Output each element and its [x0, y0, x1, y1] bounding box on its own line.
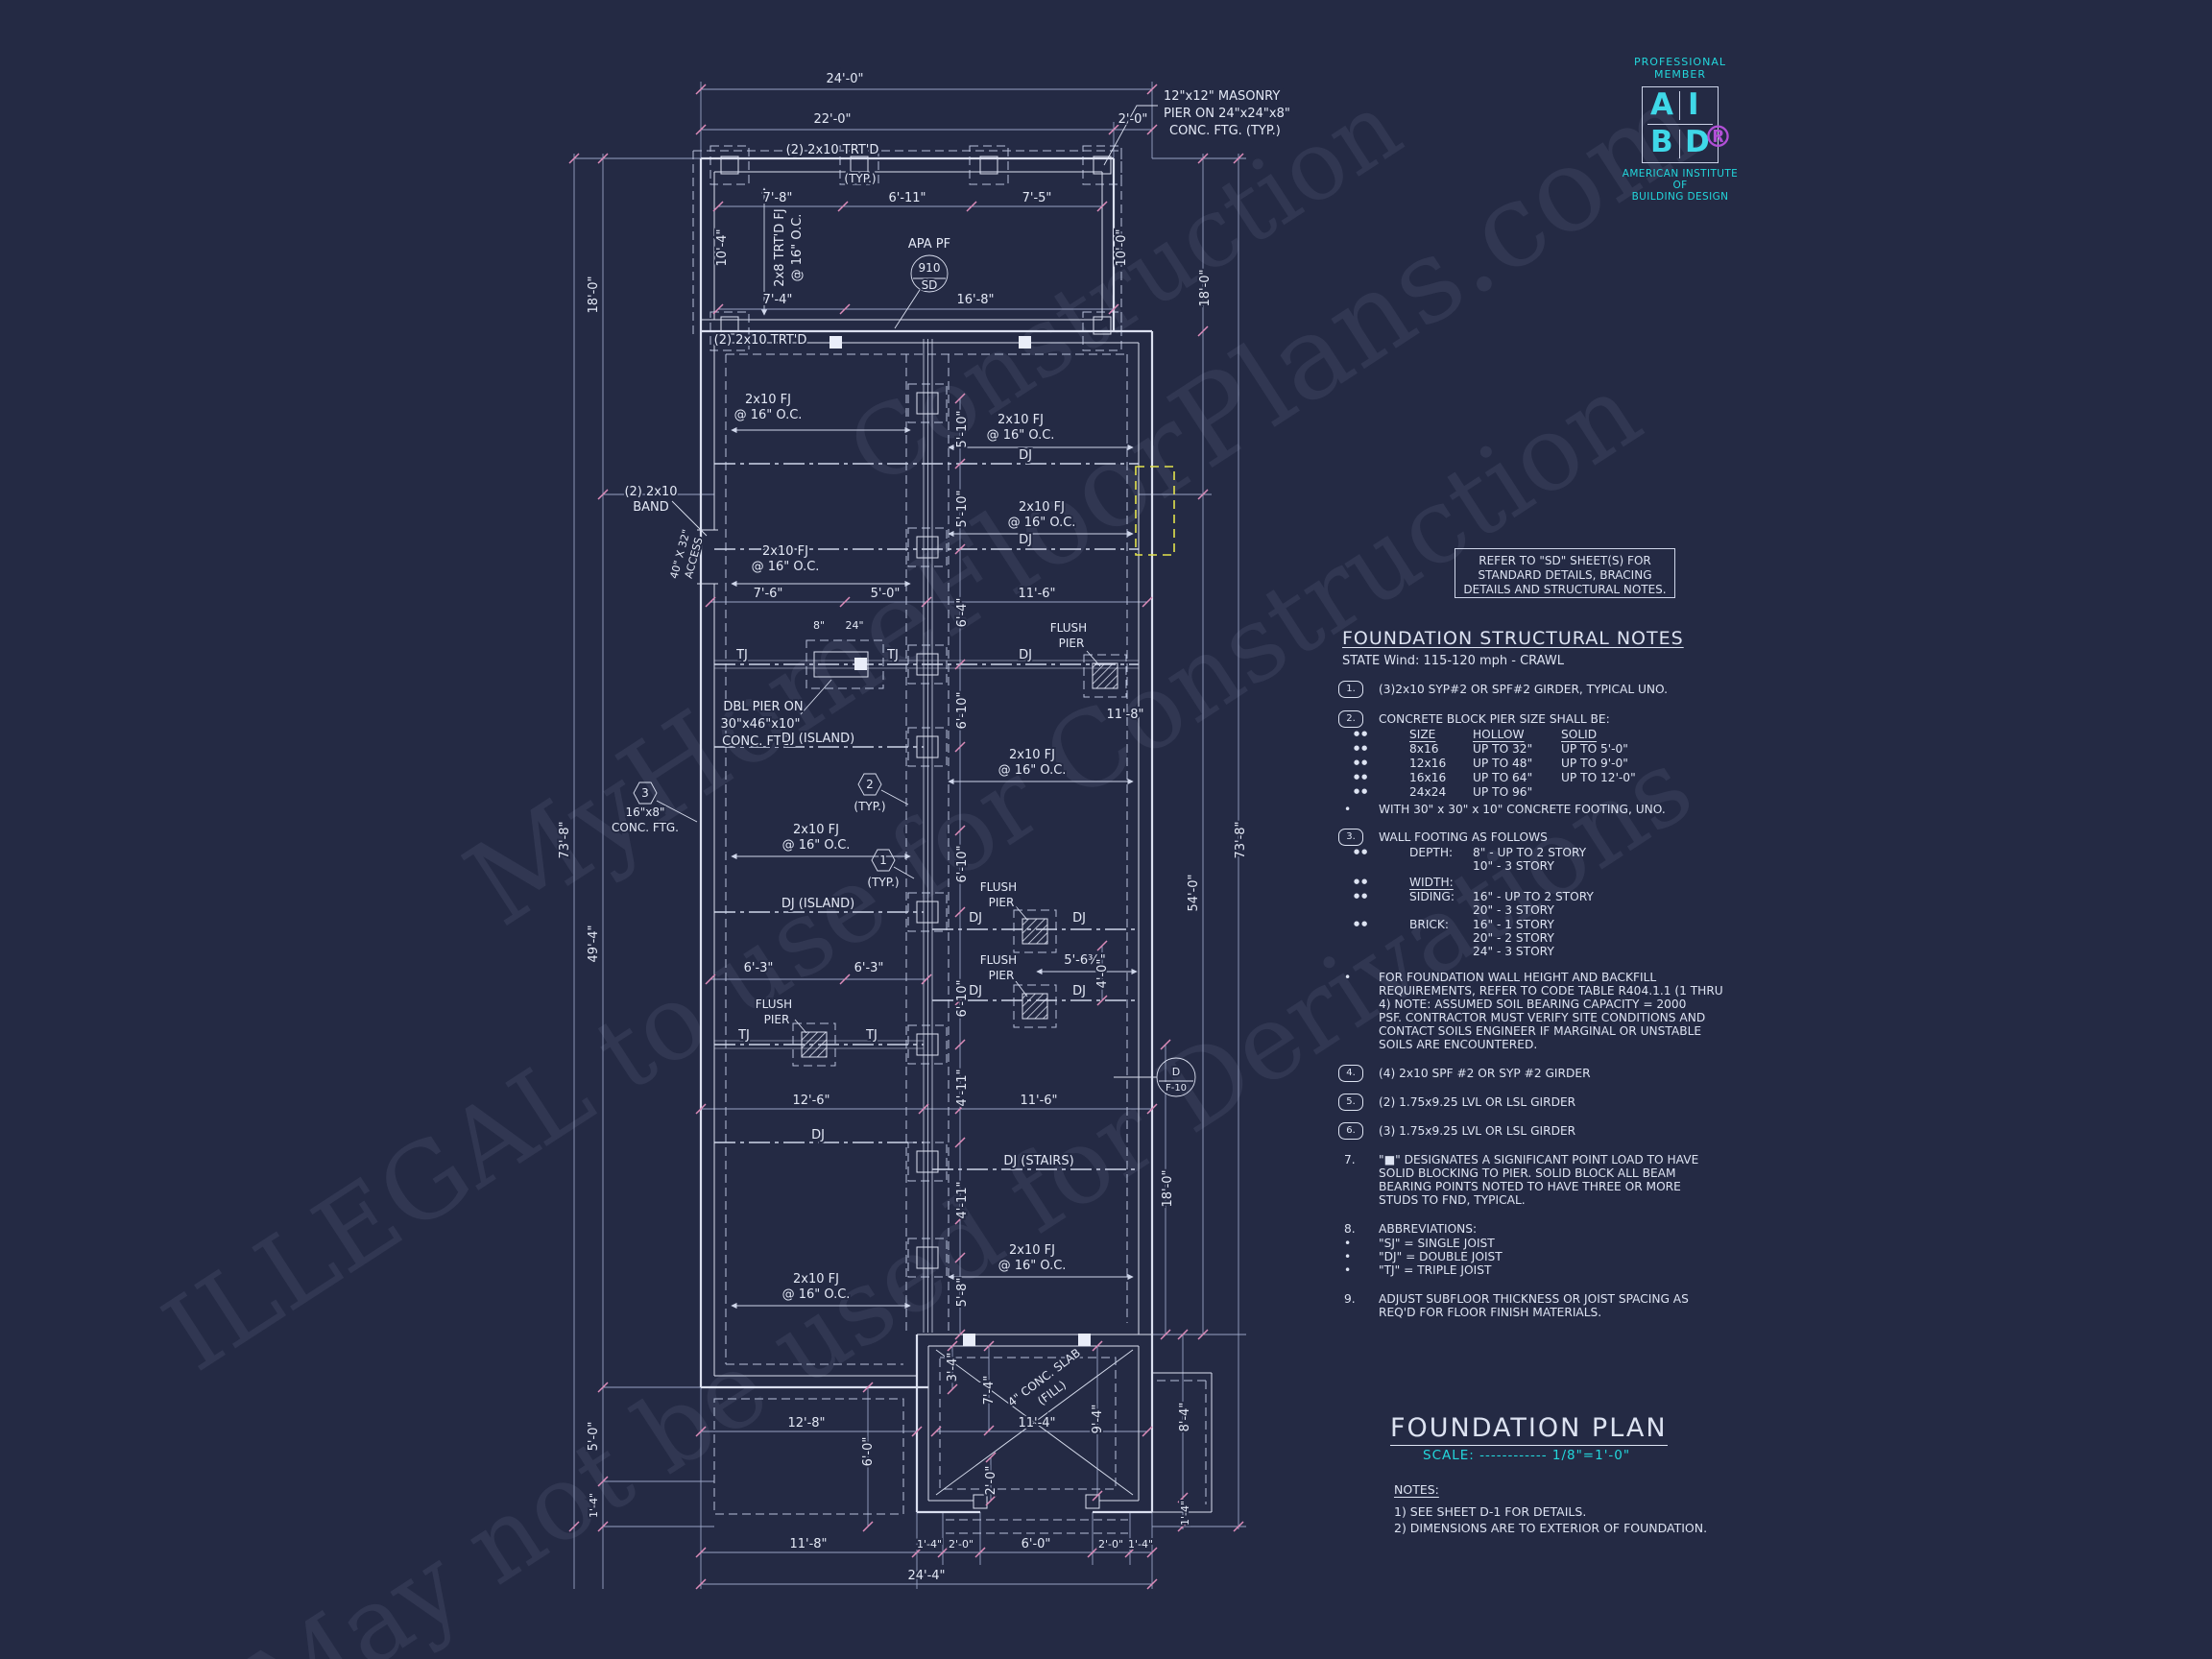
note-text: "■" DESIGNATES A SIGNIFICANT POINT LOAD …	[1379, 1153, 1698, 1166]
plan-label: FLUSH	[1050, 621, 1087, 635]
note-text: SIDING:	[1409, 890, 1455, 903]
flush-pier-hatch	[802, 1032, 827, 1057]
plan-label: 30"x46"x10"	[721, 717, 801, 732]
refer-line-1: REFER TO "SD" SHEET(S) FOR	[1455, 554, 1674, 568]
plan-label: CONC. FTG.	[612, 821, 679, 834]
registered-mark: ®	[1703, 120, 1733, 155]
note-text: UP TO 9'-0"	[1561, 757, 1628, 770]
point-load-marker	[829, 336, 842, 349]
plan-label: DJ	[969, 984, 982, 998]
plan-label: 11'-4"	[1018, 1416, 1055, 1431]
plan-label: @ 16" O.C.	[782, 1287, 851, 1302]
plan-label: 73'-8"	[1234, 821, 1248, 858]
plan-label: 4'-11"	[955, 1069, 970, 1106]
note-text: "SJ" = SINGLE JOIST	[1379, 1237, 1495, 1250]
plan-label: 18'-0"	[587, 276, 601, 313]
plan-label: @ 16" O.C.	[734, 408, 803, 422]
plan-label: 2x10 FJ	[998, 413, 1044, 427]
plan-label: (TYP.)	[854, 800, 885, 813]
plan-label: 10'-0"	[1115, 228, 1129, 266]
note-text: 12x16	[1409, 757, 1446, 770]
plan-label: 6'-11"	[888, 191, 926, 205]
note-text: HOLLOW	[1473, 728, 1525, 741]
plan-label: TJ	[865, 1028, 878, 1043]
plan-label: 6'-0"	[861, 1437, 876, 1467]
plan-label: DJ	[1019, 448, 1032, 463]
note-text: (3) 1.75x9.25 LVL OR LSL GIRDER	[1379, 1124, 1575, 1138]
plan-label: 8'-4"	[1178, 1403, 1192, 1432]
plan-label: FLUSH	[980, 880, 1017, 894]
note-text: "DJ" = DOUBLE JOIST	[1379, 1250, 1503, 1263]
note-text: WALL FOOTING AS FOLLOWS	[1379, 830, 1548, 844]
logo-letter-i: I	[1688, 87, 1699, 122]
note-text: 16" - 1 STORY	[1473, 918, 1554, 931]
note-text: "TJ" = TRIPLE JOIST	[1379, 1263, 1491, 1277]
plan-label: 5'-0"	[587, 1422, 601, 1452]
note-text: 8x16	[1409, 742, 1438, 756]
plan-label: 2x8 TRT'D FJ	[773, 208, 787, 286]
plan-label: 2x10 FJ	[1009, 1243, 1055, 1258]
plan-label: 12'-8"	[787, 1416, 825, 1431]
note-text: 16x16	[1409, 771, 1446, 784]
plan-label: 3	[641, 786, 649, 800]
structural-notes-title: FOUNDATION STRUCTURAL NOTES	[1342, 628, 1684, 649]
note-text: 24" - 3 STORY	[1473, 945, 1554, 958]
plan-label: PIER	[989, 896, 1015, 909]
plan-label: 1	[879, 854, 887, 867]
plan-label: 6'-3"	[744, 961, 774, 975]
note-text: UP TO 64"	[1473, 771, 1532, 784]
plan-label: 2x10 FJ	[793, 823, 839, 837]
point-load-marker	[1019, 336, 1031, 349]
plan-label: PIER ON 24"x24"x8"	[1164, 107, 1290, 121]
plan-label: (TYP.)	[867, 876, 899, 889]
note-text: CONTACT SOILS ENGINEER IF MARGINAL OR UN…	[1379, 1024, 1701, 1038]
plan-label: 7'-4"	[763, 293, 793, 307]
plan-label: BAND	[633, 500, 669, 515]
note-text: CONCRETE BLOCK PIER SIZE SHALL BE:	[1379, 712, 1610, 726]
note-text: REQUIREMENTS, REFER TO CODE TABLE R404.1…	[1379, 984, 1723, 998]
sheet-note-2: 2) DIMENSIONS ARE TO EXTERIOR OF FOUNDAT…	[1394, 1520, 1707, 1536]
plan-label: 8"	[813, 619, 825, 632]
plan-label: PIER	[989, 969, 1015, 982]
plan-label: DJ (STAIRS)	[1003, 1154, 1073, 1168]
point-load-marker	[963, 1334, 975, 1346]
plan-label: 4'-0"	[1095, 959, 1110, 989]
refer-line-3: DETAILS AND STRUCTURAL NOTES.	[1455, 583, 1674, 597]
plan-label: 16'-8"	[956, 293, 994, 307]
plan-label: 54'-0"	[1187, 874, 1201, 911]
plan-label: 1'-4"	[1179, 1501, 1191, 1526]
plan-label: @ 16" O.C.	[1008, 516, 1076, 530]
plan-label: 18'-0"	[1198, 269, 1213, 306]
note-marker: 4.	[1338, 1065, 1363, 1082]
plan-label: 5'-0"	[871, 587, 901, 601]
plan-label: 2'-0"	[984, 1466, 998, 1496]
plan-label: 2x10 FJ	[1019, 500, 1065, 515]
structural-notes: FOUNDATION STRUCTURAL NOTES STATE Wind: …	[1342, 628, 1726, 1338]
plan-label: FLUSH	[980, 953, 1017, 967]
plan-label: APA PF	[908, 237, 950, 252]
plan-label: 3'-4"	[946, 1353, 960, 1382]
note-text: DEPTH:	[1409, 846, 1453, 859]
plan-label: 2	[866, 778, 874, 791]
plan-label: PIER	[1059, 637, 1085, 650]
flush-pier-hatch	[1022, 919, 1047, 944]
note-text: 4) NOTE: ASSUMED SOIL BEARING CAPACITY =…	[1379, 998, 1686, 1011]
note-text: 24x24	[1409, 785, 1446, 799]
plan-label: 10'-4"	[715, 228, 730, 266]
refer-line-2: STANDARD DETAILS, BRACING	[1455, 568, 1674, 583]
note-text: UP TO 32"	[1473, 742, 1532, 756]
aibd-caption-3: BUILDING DESIGN	[1621, 191, 1740, 203]
plan-label: 2x10 FJ	[1009, 748, 1055, 762]
aibd-logo-box: A I B D ®	[1642, 86, 1719, 163]
note-text: PSF. CONTRACTOR MUST VERIFY SITE CONDITI…	[1379, 1011, 1705, 1024]
plan-label: 12'-6"	[792, 1094, 829, 1108]
plan-label: (2) 2x10 TRT'D	[786, 143, 879, 157]
note-marker: 1.	[1338, 681, 1363, 698]
plan-label: 910	[919, 261, 941, 275]
note-text: 8" - UP TO 2 STORY	[1473, 846, 1586, 859]
plan-label: DJ	[1019, 533, 1032, 547]
blueprint-sheet: MyHomeFloorPlans.comConstructionILLEGAL …	[0, 0, 2212, 1659]
note-text: SOILS ARE ENCOUNTERED.	[1379, 1038, 1537, 1051]
plan-label: 2'-0"	[949, 1538, 974, 1551]
note-text: BEARING POINTS NOTED TO HAVE THREE OR MO…	[1379, 1180, 1681, 1193]
plan-label: DJ	[1072, 911, 1086, 926]
note-text: 20" - 2 STORY	[1473, 931, 1554, 945]
plan-label: @ 16" O.C.	[998, 1259, 1067, 1273]
plan-label: 18'-0"	[1161, 1169, 1175, 1207]
note-text: (4) 2x10 SPF #2 OR SYP #2 GIRDER	[1379, 1067, 1591, 1080]
sheet-title: FOUNDATION PLAN	[1390, 1413, 1668, 1446]
note-text: UP TO 96"	[1473, 785, 1532, 799]
plan-label: (TYP.)	[844, 172, 876, 185]
plan-label: 73'-8"	[558, 821, 572, 858]
plan-label: 2x10 FJ	[745, 393, 791, 407]
plan-label: 1'-4"	[588, 1493, 600, 1518]
plan-label: 1'-4"	[1128, 1538, 1153, 1551]
plan-label: DJ (ISLAND)	[781, 732, 854, 746]
note-text: REQ'D FOR FLOOR FINISH MATERIALS.	[1379, 1306, 1601, 1319]
note-text: FOR FOUNDATION WALL HEIGHT AND BACKFILL	[1379, 971, 1656, 984]
plan-label: F-10	[1166, 1083, 1187, 1094]
sheet-notes-heading: NOTES:	[1394, 1481, 1439, 1498]
note-text: ADJUST SUBFLOOR THICKNESS OR JOIST SPACI…	[1379, 1292, 1689, 1306]
professional-member-label: PROFESSIONAL	[1621, 56, 1740, 68]
aibd-logo: PROFESSIONAL MEMBER A I B D ® AMERICAN I…	[1621, 56, 1740, 203]
note-text: UP TO 12'-0"	[1561, 771, 1636, 784]
plan-label: 1'-4"	[917, 1538, 942, 1551]
foundation-plan-drawing: MyHomeFloorPlans.comConstructionILLEGAL …	[0, 0, 2212, 1659]
plan-label: 7'-4"	[982, 1376, 997, 1406]
note-text: 16" - UP TO 2 STORY	[1473, 890, 1594, 903]
aibd-caption-2: OF	[1621, 180, 1740, 191]
plan-label: 6'-4"	[955, 598, 970, 628]
plan-label: @ 16" O.C.	[782, 838, 851, 853]
plan-label: 22'-0"	[813, 112, 851, 127]
plan-label: DJ	[811, 1128, 825, 1142]
plan-label: 6'-3"	[854, 961, 884, 975]
plan-label: 6'-0"	[1022, 1537, 1051, 1551]
note-text: BRICK:	[1409, 918, 1449, 931]
plan-label: 16"x8"	[625, 805, 664, 819]
plan-label: 49'-4"	[587, 925, 601, 962]
plan-label: 12"x12" MASONRY	[1164, 89, 1280, 104]
note-text: STUDS TO FND, TYPICAL.	[1379, 1193, 1526, 1207]
plan-label: TJ	[737, 1028, 750, 1043]
note-text: SIZE	[1409, 728, 1435, 741]
plan-label: DJ	[1072, 984, 1086, 998]
plan-label: DJ (ISLAND)	[781, 897, 854, 911]
plan-label: 24'-4"	[907, 1569, 945, 1583]
plan-label: 7'-5"	[1022, 191, 1052, 205]
plan-label: 11'-8"	[789, 1537, 827, 1551]
sheet-scale: SCALE: ------------ 1/8"=1'-0"	[1423, 1448, 1630, 1463]
plan-label: 24'-0"	[826, 72, 863, 86]
plan-label: @ 16" O.C.	[987, 428, 1055, 443]
logo-letter-a: A	[1650, 87, 1673, 122]
flush-pier-hatch	[1093, 663, 1118, 688]
plan-label: @ 16" O.C.	[790, 214, 805, 282]
sheet-notes: NOTES: 1) SEE SHEET D-1 FOR DETAILS. 2) …	[1394, 1481, 1707, 1536]
plan-label: 9'-4"	[1091, 1405, 1105, 1434]
plan-label: @ 16" O.C.	[752, 560, 820, 574]
member-label: MEMBER	[1621, 68, 1740, 81]
plan-label: 5'-10"	[955, 490, 970, 527]
plan-label: 2'-0"	[1098, 1538, 1123, 1551]
plan-label: DJ	[1019, 648, 1032, 662]
note-text: 10" - 3 STORY	[1473, 859, 1554, 873]
logo-letter-b: B	[1650, 125, 1673, 159]
plan-label: (2) 2x10	[624, 485, 677, 499]
note-text: UP TO 48"	[1473, 757, 1532, 770]
plan-label: 4'-11"	[955, 1181, 970, 1218]
structural-notes-subtitle: STATE Wind: 115-120 mph - CRAWL	[1342, 654, 1564, 668]
note-marker: 6.	[1338, 1122, 1363, 1140]
note-text: WIDTH:	[1409, 876, 1454, 889]
sheet-note-1: 1) SEE SHEET D-1 FOR DETAILS.	[1394, 1503, 1707, 1520]
note-text: (2) 1.75x9.25 LVL OR LSL GIRDER	[1379, 1095, 1575, 1109]
plan-label: TJ	[735, 648, 748, 662]
note-text: UP TO 5'-0"	[1561, 742, 1628, 756]
note-marker: 5.	[1338, 1094, 1363, 1111]
plan-label: DJ	[969, 911, 982, 926]
point-load-marker	[1078, 1334, 1091, 1346]
note-text: SOLID BLOCKING TO PIER. SOLID BLOCK ALL …	[1379, 1166, 1676, 1180]
plan-label: PIER	[764, 1013, 790, 1026]
plan-label: 11'-6"	[1020, 1094, 1057, 1108]
note-text: WITH 30" x 30" x 10" CONCRETE FOOTING, U…	[1379, 803, 1666, 816]
plan-label: 2x10 FJ	[793, 1272, 839, 1286]
plan-label: 7'-8"	[763, 191, 793, 205]
note-marker: 3.	[1338, 829, 1363, 846]
note-text: (3)2x10 SYP#2 OR SPF#2 GIRDER, TYPICAL U…	[1379, 683, 1668, 696]
plan-label: 5'-8"	[955, 1278, 970, 1308]
plan-label: 6'-10"	[955, 845, 970, 882]
plan-label: D	[1172, 1066, 1180, 1078]
plan-label: 11'-6"	[1018, 587, 1055, 601]
note-text: ABBREVIATIONS:	[1379, 1222, 1477, 1236]
plan-label: 7'-6"	[754, 587, 783, 601]
aibd-caption-1: AMERICAN INSTITUTE	[1621, 168, 1740, 180]
point-load-marker	[854, 658, 867, 670]
plan-label: DBL PIER ON	[723, 700, 803, 714]
plan-label: 2'-0"	[1118, 112, 1148, 127]
plan-label: @ 16" O.C.	[998, 763, 1067, 778]
note-text: 20" - 3 STORY	[1473, 903, 1554, 917]
plan-label: (2) 2x10 TRT'D	[714, 333, 807, 348]
flush-pier-hatch	[1022, 994, 1047, 1019]
plan-label: FLUSH	[756, 998, 792, 1011]
plan-label: 6'-10"	[955, 979, 970, 1017]
plan-label: 24"	[845, 619, 863, 632]
refer-note-box: REFER TO "SD" SHEET(S) FOR STANDARD DETA…	[1455, 548, 1675, 598]
note-marker: 2.	[1338, 710, 1363, 728]
plan-label: 2x10 FJ	[762, 544, 808, 559]
plan-label: CONC. FTG. (TYP.)	[1169, 124, 1281, 138]
plan-label: SD	[922, 278, 938, 292]
note-text: SOLID	[1561, 728, 1597, 741]
plan-label: 11'-8"	[1106, 708, 1143, 722]
plan-label: 6'-10"	[955, 691, 970, 729]
plan-label: TJ	[886, 648, 899, 662]
plan-label: 5'-10"	[955, 410, 970, 447]
